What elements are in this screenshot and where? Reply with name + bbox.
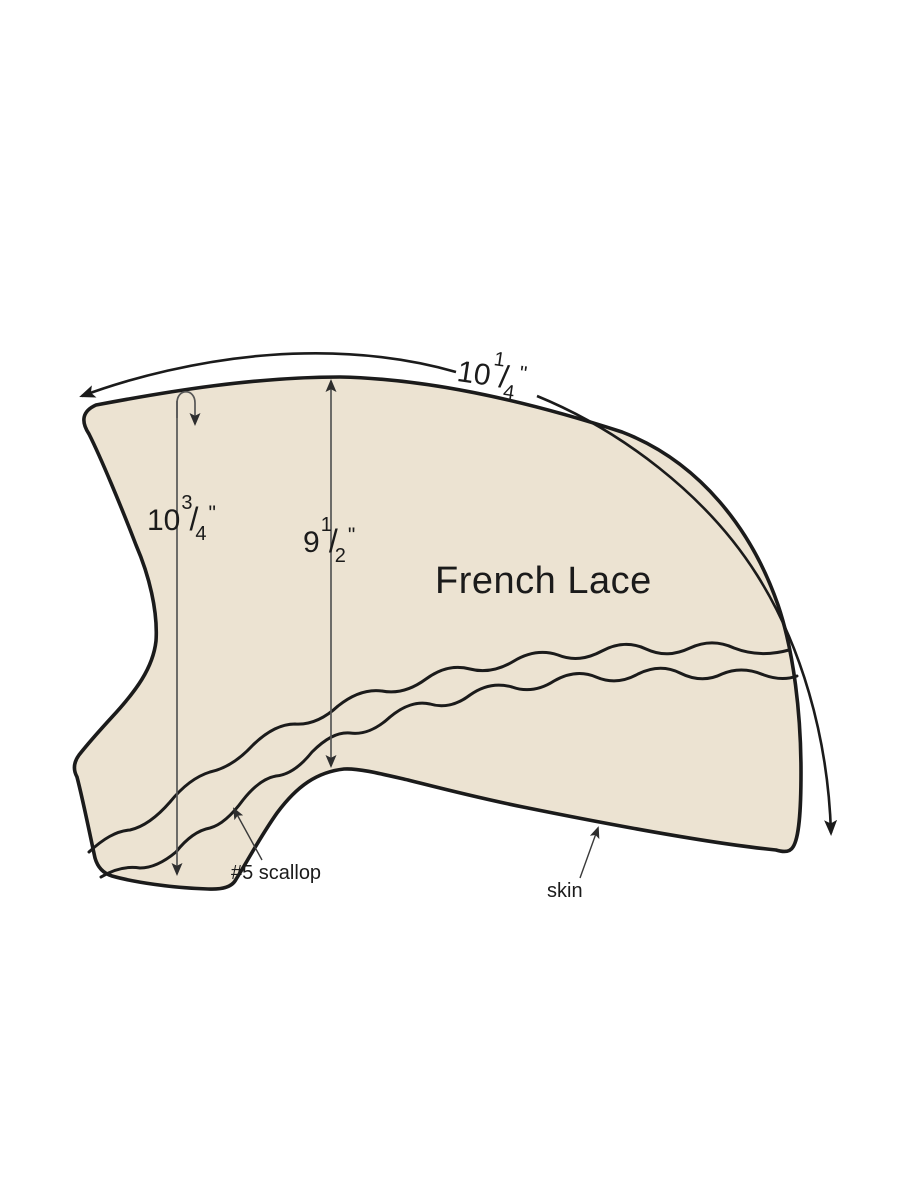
pattern-diagram-page: 101/4" 103/4" 91/2" French Lace #5 scall… — [0, 0, 901, 1200]
scallop-label: #5 scallop — [231, 862, 321, 885]
measurement-center-depth-whole: 9 — [303, 526, 320, 559]
measurement-left-depth: 103/4" — [147, 503, 216, 536]
pattern-shape-outline — [74, 377, 801, 889]
material-label: French Lace — [435, 560, 652, 603]
measurement-left-depth-denominator: 4 — [195, 523, 206, 545]
skin-leader-line — [580, 828, 598, 878]
measurement-center-depth-denominator: 2 — [335, 545, 346, 567]
skin-label: skin — [547, 880, 583, 903]
measurement-outer-arc-whole: 10 — [455, 355, 493, 393]
measurement-center-depth: 91/2" — [303, 525, 355, 558]
measurement-left-depth-unit: " — [209, 502, 216, 525]
measurement-left-depth-numerator: 3 — [181, 492, 192, 514]
measurement-left-depth-whole: 10 — [147, 504, 180, 537]
measurement-center-depth-unit: " — [348, 524, 355, 547]
measurement-center-depth-numerator: 1 — [321, 514, 332, 536]
